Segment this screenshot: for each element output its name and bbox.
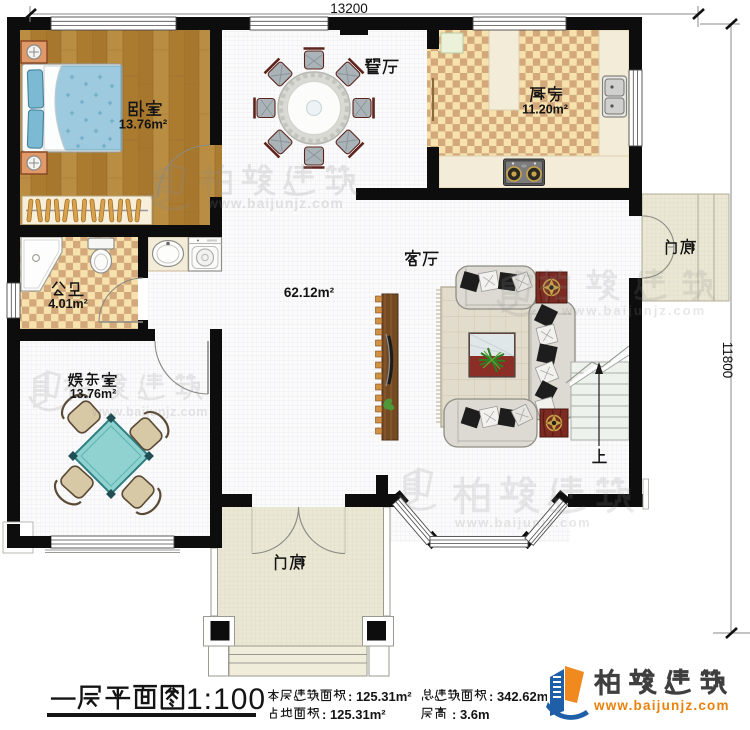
svg-text:: 125.31m²: : 125.31m² xyxy=(348,689,412,704)
svg-text:: 3.6m: : 3.6m xyxy=(452,707,490,722)
svg-text:: 342.62m²: : 342.62m² xyxy=(489,689,553,704)
svg-text:www.baijunjz.com: www.baijunjz.com xyxy=(561,303,706,318)
svg-text:: 125.31m²: : 125.31m² xyxy=(322,707,386,722)
svg-text:1:100: 1:100 xyxy=(186,683,266,716)
svg-text:11.20m²: 11.20m² xyxy=(522,103,568,117)
svg-text:13200: 13200 xyxy=(330,1,368,16)
svg-text:13.76m²: 13.76m² xyxy=(70,387,117,401)
svg-text:www.baijunjz.com: www.baijunjz.com xyxy=(593,698,730,713)
svg-text:www.baijunjz.com: www.baijunjz.com xyxy=(454,515,591,530)
svg-text:11800: 11800 xyxy=(720,342,735,379)
svg-text:62.12m²: 62.12m² xyxy=(284,285,335,300)
svg-text:4.01m²: 4.01m² xyxy=(48,297,88,311)
svg-text:www.baijunjz.com: www.baijunjz.com xyxy=(91,405,208,419)
svg-text:13.76m²: 13.76m² xyxy=(119,117,168,132)
svg-text:www.baijunjz.com: www.baijunjz.com xyxy=(206,195,344,211)
